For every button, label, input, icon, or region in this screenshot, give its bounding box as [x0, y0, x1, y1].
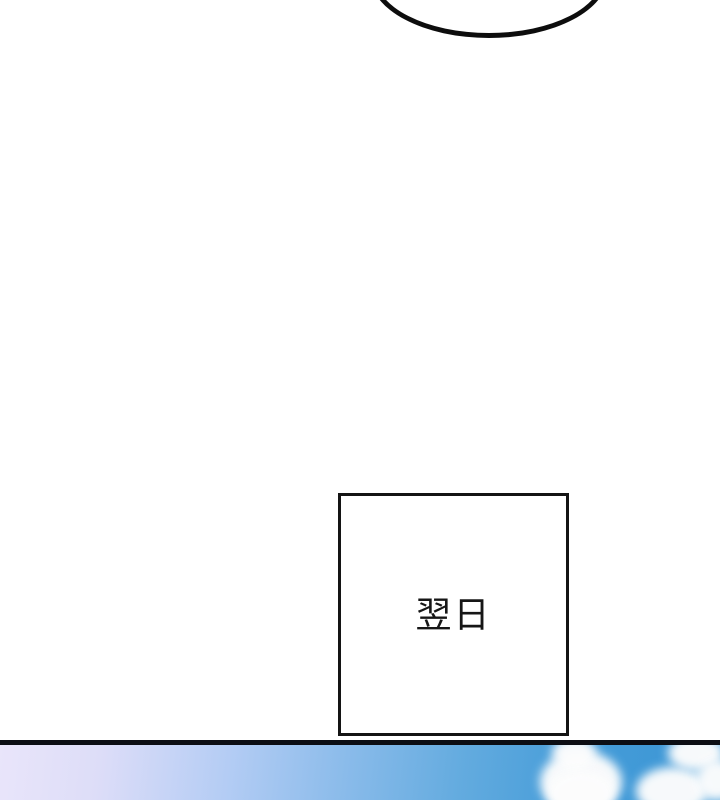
speech-bubble-bottom-arc — [370, 0, 608, 38]
caption-panel: 翌日 — [338, 493, 569, 736]
comic-page: 翌日 — [0, 0, 720, 800]
caption-text: 翌日 — [415, 597, 491, 633]
sky-panel — [0, 745, 720, 800]
